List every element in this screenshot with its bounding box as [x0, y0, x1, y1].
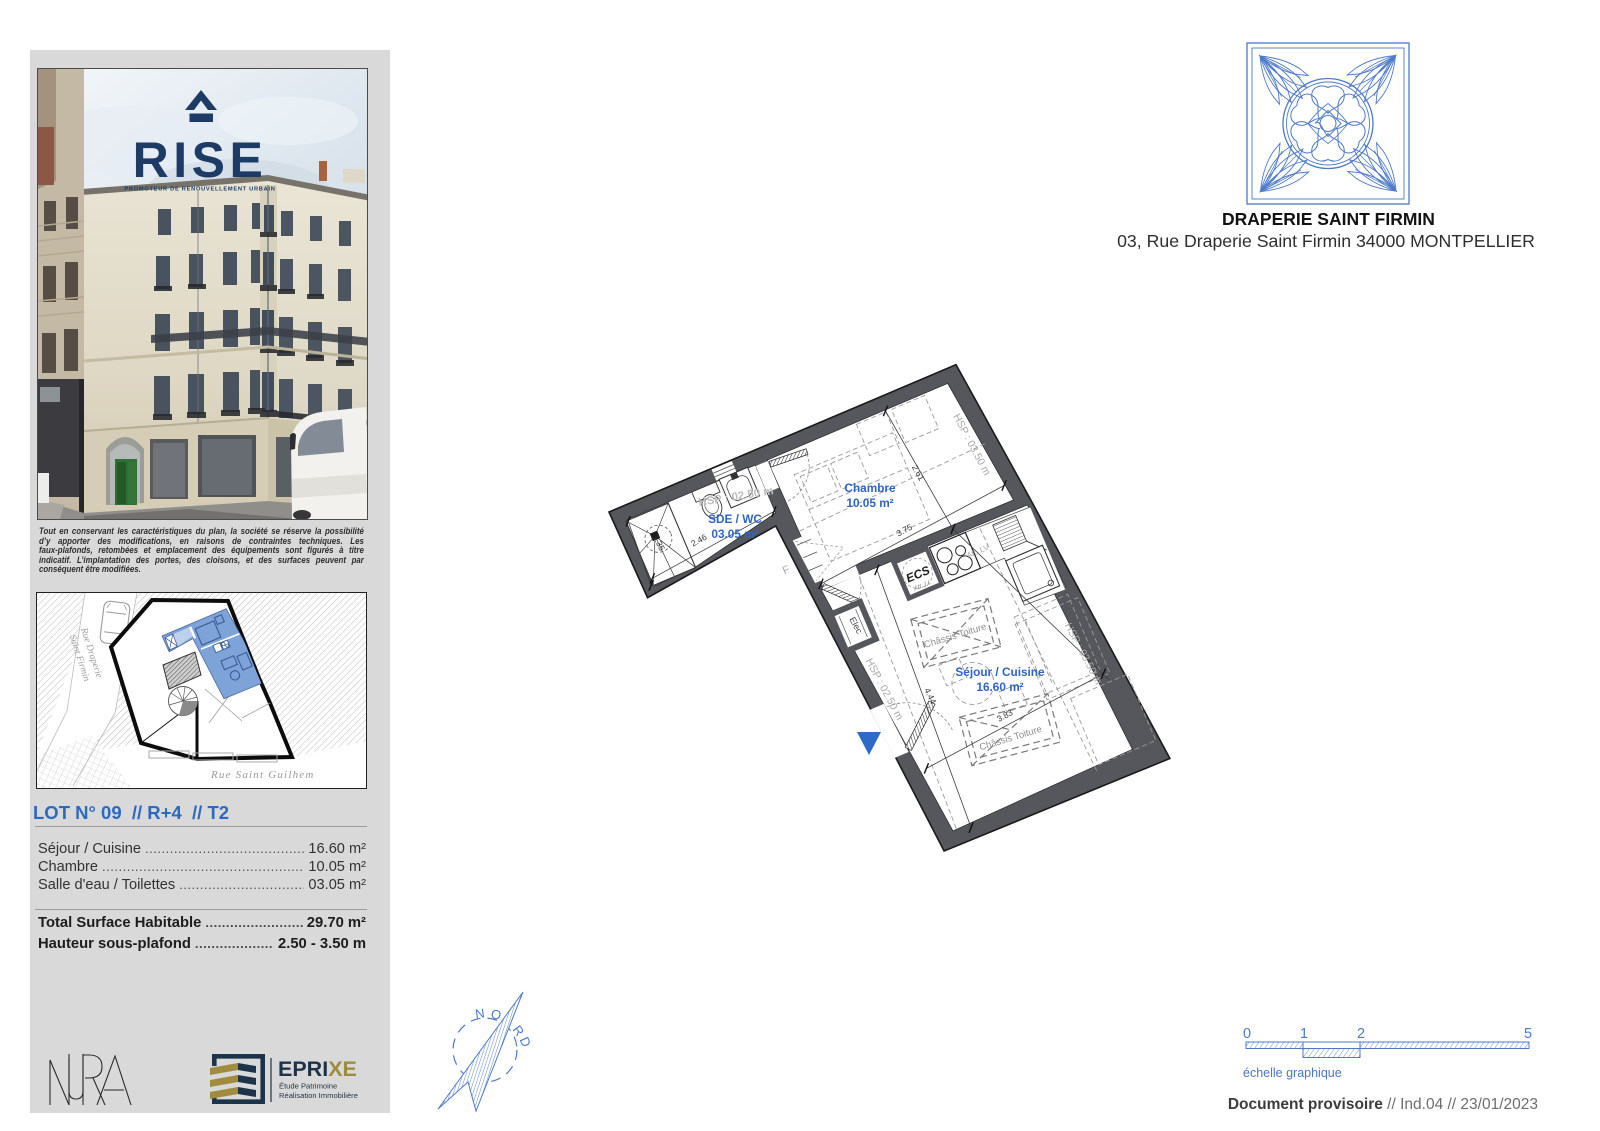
- svg-text:5: 5: [1524, 1026, 1532, 1042]
- svg-text:Rue Saint Guilhem: Rue Saint Guilhem: [210, 769, 315, 781]
- svg-text:0: 0: [1243, 1026, 1251, 1042]
- svg-text:03.05 m²: 03.05 m²: [711, 527, 758, 541]
- svg-text:1: 1: [1300, 1026, 1308, 1042]
- svg-text:Étude Patrimoine: Étude Patrimoine: [279, 1082, 337, 1091]
- svg-text:Réalisation Immobilière: Réalisation Immobilière: [279, 1091, 358, 1100]
- svg-text:Séjour / Cuisine: Séjour / Cuisine: [955, 665, 1045, 679]
- svg-text:16.60 m²: 16.60 m²: [976, 680, 1023, 694]
- svg-text:PROMOTEUR DE RENOUVELLEMENT UR: PROMOTEUR DE RENOUVELLEMENT URBAIN: [124, 187, 275, 193]
- svg-text:F: F: [781, 563, 792, 577]
- svg-text:N: N: [474, 1005, 485, 1021]
- svg-text:Chambre: Chambre: [844, 481, 896, 495]
- svg-text:RISE: RISE: [133, 132, 268, 188]
- svg-text:EPRIXE: EPRIXE: [278, 1057, 357, 1081]
- svg-text:10.05 m²: 10.05 m²: [846, 496, 893, 510]
- svg-text:SDE / WC: SDE / WC: [708, 512, 762, 526]
- svg-text:2: 2: [1357, 1026, 1365, 1042]
- svg-text:O: O: [489, 1006, 502, 1023]
- svg-text:D: D: [517, 1034, 535, 1049]
